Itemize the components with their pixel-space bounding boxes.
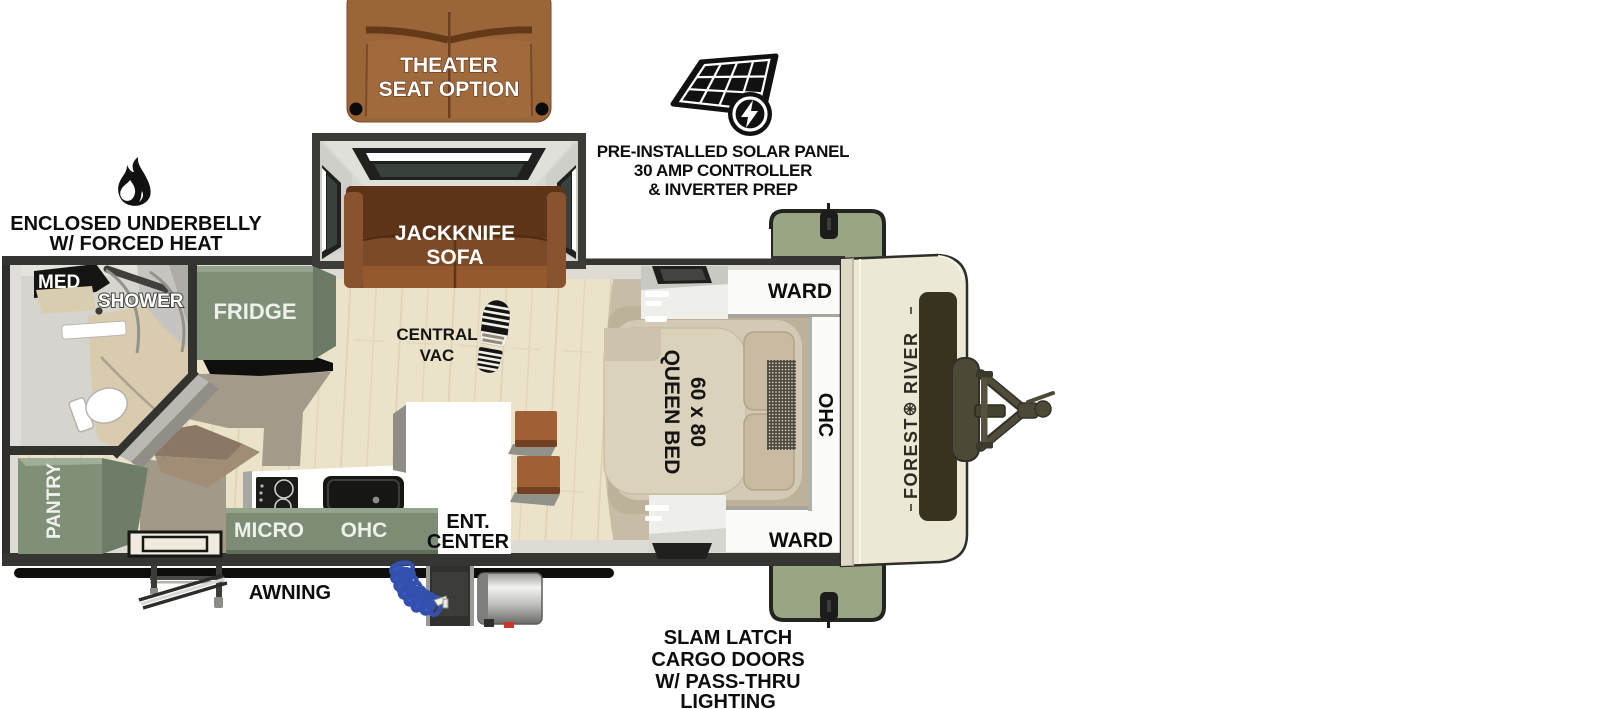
svg-text:PRE-INSTALLED SOLAR PANEL: PRE-INSTALLED SOLAR PANEL <box>597 142 850 161</box>
svg-text:AWNING: AWNING <box>249 582 331 604</box>
svg-text:CENTER: CENTER <box>427 531 510 553</box>
svg-text:30 AMP CONTROLLER: 30 AMP CONTROLLER <box>634 161 812 180</box>
svg-text:CENTRAL: CENTRAL <box>396 325 477 344</box>
svg-text:VAC: VAC <box>420 346 455 365</box>
svg-text:MICRO: MICRO <box>234 519 304 542</box>
svg-text:RIVER: RIVER <box>901 331 921 394</box>
svg-text:OHC: OHC <box>341 519 388 542</box>
svg-text:FOREST: FOREST <box>901 417 921 499</box>
svg-text:& INVERTER PREP: & INVERTER PREP <box>648 180 797 199</box>
svg-text:W/ PASS-THRU: W/ PASS-THRU <box>655 671 800 693</box>
svg-text:SEAT OPTION: SEAT OPTION <box>379 78 520 101</box>
svg-text:W/ FORCED HEAT: W/ FORCED HEAT <box>50 233 223 255</box>
svg-text:PANTRY: PANTRY <box>44 463 65 539</box>
svg-text:60 x 80: 60 x 80 <box>686 377 709 447</box>
svg-text:SOFA: SOFA <box>426 246 483 269</box>
svg-text:SLAM LATCH: SLAM LATCH <box>664 627 793 649</box>
svg-text:CARGO DOORS: CARGO DOORS <box>651 649 804 671</box>
svg-text:FRIDGE: FRIDGE <box>213 299 296 324</box>
svg-text:OHC: OHC <box>814 393 836 437</box>
svg-text:WARD: WARD <box>769 529 833 552</box>
svg-text:JACKKNIFE: JACKKNIFE <box>395 222 515 245</box>
svg-text:WARD: WARD <box>768 280 832 303</box>
svg-text:ENT.: ENT. <box>446 511 489 533</box>
svg-text:LIGHTING: LIGHTING <box>680 691 776 709</box>
svg-text:THEATER: THEATER <box>400 54 498 77</box>
svg-text:SHOWER: SHOWER <box>98 291 184 312</box>
svg-text:ENCLOSED UNDERBELLY: ENCLOSED UNDERBELLY <box>10 213 262 235</box>
svg-text:QUEEN BED: QUEEN BED <box>660 350 683 475</box>
